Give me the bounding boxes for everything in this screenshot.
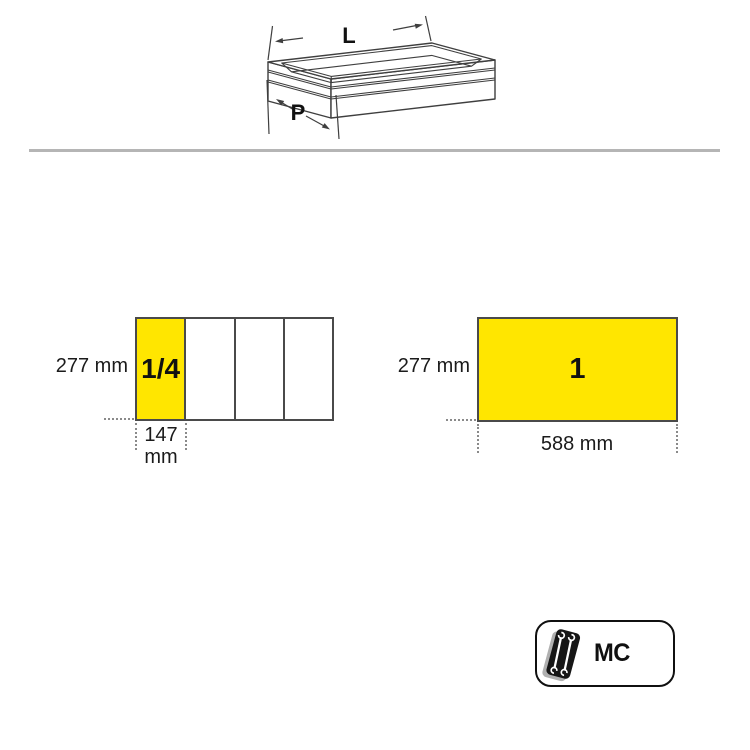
left-baseline-dotted-line <box>104 418 134 420</box>
depth-arrow-down <box>322 123 330 129</box>
catalog-page: L P 277 mm 1/4 147 mm 277 mm 1 588 mm <box>0 0 750 750</box>
module-section-empty <box>236 319 285 419</box>
mc-badge: MC <box>535 620 675 687</box>
left-module-rect: 1/4 <box>135 317 334 421</box>
mc-badge-label: MC <box>594 639 630 668</box>
length-label: L <box>342 23 355 48</box>
left-width-value: 147 <box>136 425 186 445</box>
quarter-fraction-label: 1/4 <box>141 353 180 385</box>
length-arrow-right <box>415 24 423 29</box>
section-divider-rule <box>29 149 720 152</box>
left-height-label: 277 mm <box>40 356 128 376</box>
module-section-empty <box>285 319 332 419</box>
right-baseline-dotted-line <box>446 419 476 421</box>
right-height-label: 277 mm <box>382 356 470 376</box>
depth-label: P <box>291 100 306 125</box>
module-section-quarter: 1/4 <box>137 319 186 419</box>
right-width-label: 588 mm <box>477 434 677 454</box>
wrench-tray-icon <box>542 623 592 685</box>
left-width-unit: mm <box>136 447 186 467</box>
drawer-isometric-icon: L P <box>255 0 505 148</box>
module-section-empty <box>186 319 235 419</box>
right-module-rect: 1 <box>477 317 678 422</box>
full-module-label: 1 <box>479 319 676 420</box>
length-arrow-left <box>275 38 283 43</box>
